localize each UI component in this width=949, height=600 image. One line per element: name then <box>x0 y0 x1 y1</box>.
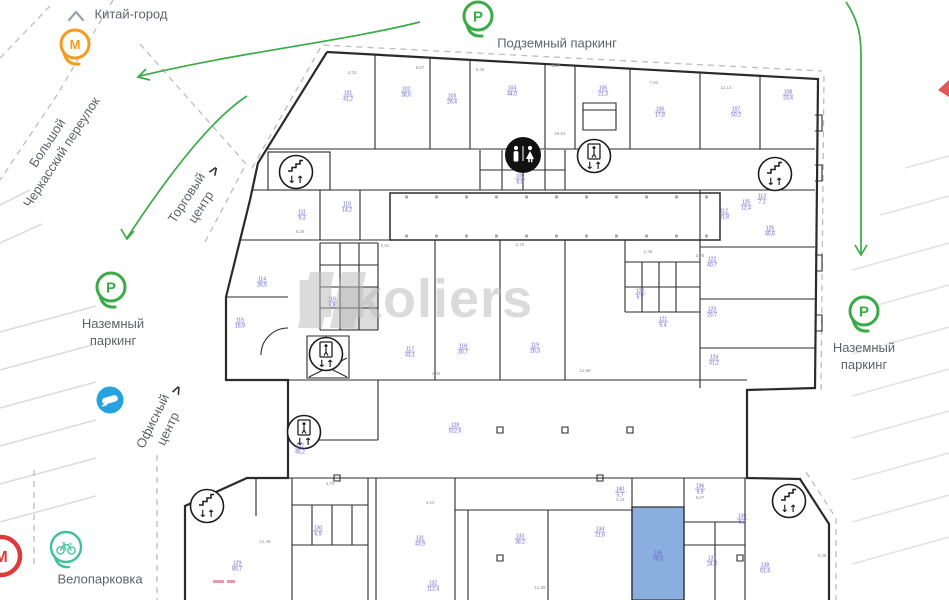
red-plan-note <box>213 580 224 583</box>
stairs-icon: ↓↑ <box>773 485 806 518</box>
svg-text:↓↑: ↓↑ <box>781 504 798 515</box>
svg-text:P: P <box>859 304 869 321</box>
svg-text:P: P <box>106 280 116 297</box>
metro-pin[interactable]: М <box>61 30 89 64</box>
svg-text:↓↑: ↓↑ <box>586 161 603 172</box>
svg-text:↓↑: ↓↑ <box>199 509 216 520</box>
red-corner-fragment <box>938 80 949 97</box>
svg-text:М: М <box>70 37 81 52</box>
bike-parking-label: Велопарковка <box>57 572 142 589</box>
svg-text:P: P <box>473 9 483 26</box>
elevator-icon: ↓↑ <box>578 140 611 173</box>
nikoliers-watermark: Nikoliers <box>296 268 533 330</box>
selected-room[interactable] <box>632 507 684 600</box>
svg-text:↓↑: ↓↑ <box>288 175 305 186</box>
stairs-icon: ↓↑ <box>759 158 792 191</box>
route-arrow-right <box>846 2 867 255</box>
parking-hatch-left <box>0 190 96 522</box>
wc-icon <box>505 137 541 173</box>
floor-plan-map: ↓↑ ↓↑ ↓↑ ↓↑ ↓↑ ↓ <box>0 0 949 600</box>
bus-stop-icon[interactable] <box>97 387 124 414</box>
svg-text:М: М <box>0 549 8 566</box>
caret-icon <box>69 12 83 20</box>
stairs-icon: ↓↑ <box>280 156 313 189</box>
metro-pin-bottom[interactable]: М <box>0 537 20 575</box>
ground-parking-left-pin[interactable]: P <box>97 273 125 307</box>
route-arrow-to-metro <box>138 22 420 80</box>
underground-parking-label: Подземный паркинг <box>497 36 617 53</box>
nikoliers-logo-icon <box>296 268 370 332</box>
bike-parking-pin[interactable] <box>51 532 81 567</box>
underground-parking-pin[interactable]: P <box>464 2 492 36</box>
ground-parking-right-pin[interactable]: P <box>850 297 878 331</box>
svg-text:↓↑: ↓↑ <box>296 437 313 448</box>
red-plan-note <box>227 580 235 583</box>
svg-text:↓↑: ↓↑ <box>318 359 335 370</box>
ground-parking-right-label: Наземный паркинг <box>833 340 895 374</box>
ground-parking-left-label: Наземный паркинг <box>82 316 144 350</box>
elevator-icon: ↓↑ <box>310 338 343 371</box>
metro-station-label: Китай-город <box>95 7 168 24</box>
svg-text:↓↑: ↓↑ <box>767 177 784 188</box>
stairs-icon: ↓↑ <box>191 490 224 523</box>
elevator-icon: ↓↑ <box>288 416 321 449</box>
